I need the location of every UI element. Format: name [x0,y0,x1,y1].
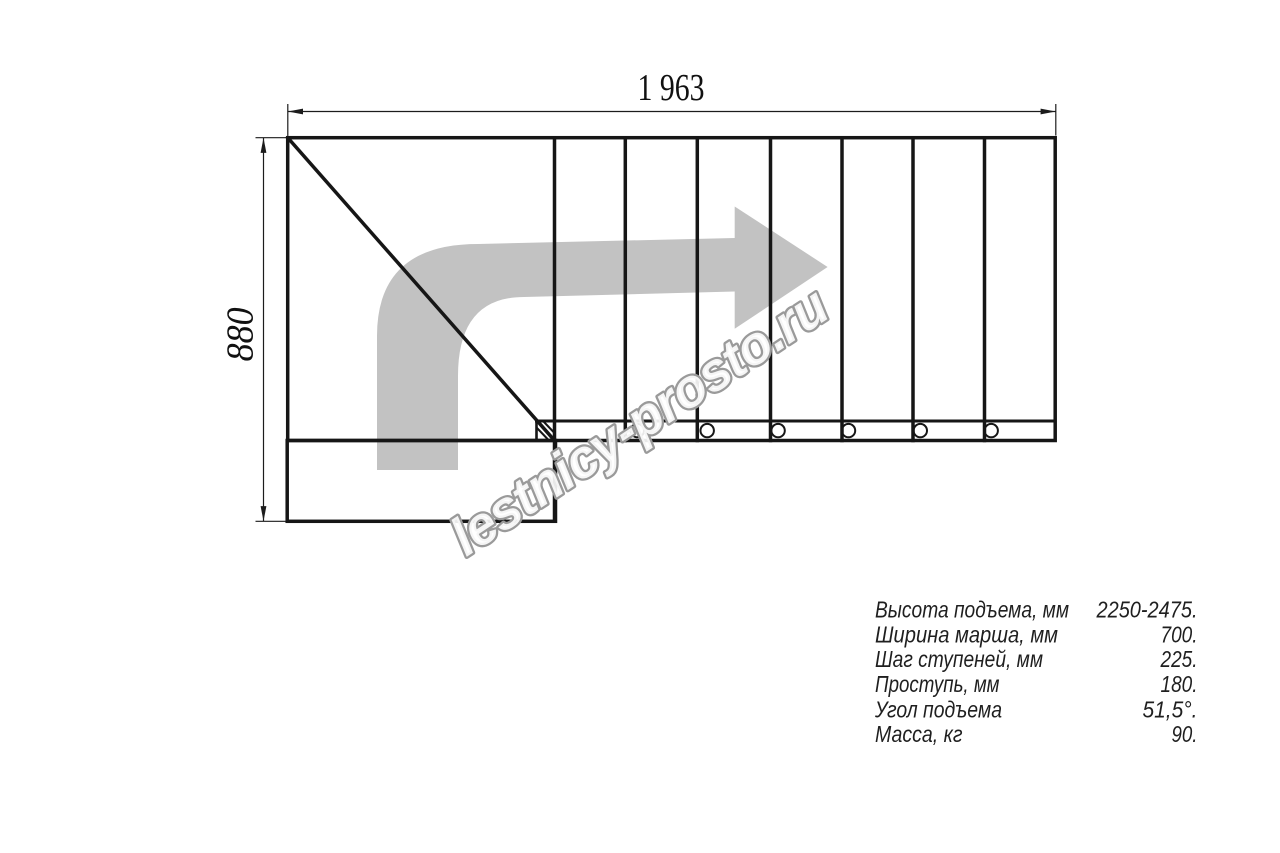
svg-text:90.: 90. [1172,721,1198,747]
svg-text:Ширина марша, мм: Ширина марша, мм [875,621,1058,647]
svg-text:180.: 180. [1161,671,1198,697]
svg-text:Проступь, мм: Проступь, мм [875,671,1000,697]
svg-text:225.: 225. [1160,646,1198,672]
svg-text:Шаг ступеней, мм: Шаг ступеней, мм [875,646,1043,672]
svg-text:700.: 700. [1161,621,1198,647]
svg-text:51,5°.: 51,5°. [1143,696,1198,722]
svg-text:Высота подъема, мм: Высота подъема, мм [875,597,1069,623]
svg-text:Угол подъема: Угол подъема [874,696,1002,722]
svg-text:880: 880 [220,307,262,361]
svg-text:Масса, кг: Масса, кг [875,721,963,747]
svg-text:2250-2475.: 2250-2475. [1096,597,1198,623]
svg-text:1 963: 1 963 [638,68,705,109]
